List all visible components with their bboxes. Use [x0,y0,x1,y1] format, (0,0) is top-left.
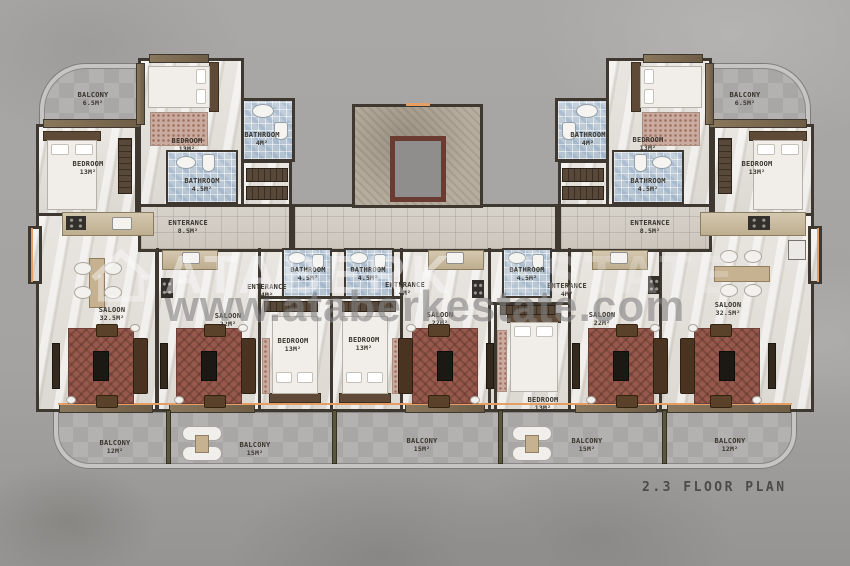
wardrobe [562,186,604,200]
wall-segment [568,248,571,412]
room-label-balcony-29: BALCONY15M² [572,437,603,453]
balcony-table-set [512,426,554,462]
window-accent [31,228,33,282]
wardrobe [246,168,288,182]
wood-wall-segment [644,55,702,62]
room-label-bathroom-4: BATHROOM4.5M² [184,177,219,193]
sofa-set [160,324,256,408]
sofa-set [398,324,494,408]
bathroom-sink [288,252,306,264]
room-label-enterance-5: ENTERANCE8.5M² [168,219,208,235]
wardrobe [500,305,556,315]
balcony-table-set [182,426,224,462]
stove [472,280,484,298]
room-label-bedroom-23: BEDROOM13M² [742,160,773,176]
kitchen-sink [182,252,200,264]
room-label-bathroom-8: BATHROOM4.5M² [290,266,325,282]
room-label-bedroom-10: BEDROOM13M² [278,337,309,353]
room-label-enterance-12: ENTERANCE4M² [385,281,425,297]
room-label-saloon-14: SALOON22M² [427,311,454,327]
window-accent [817,228,819,282]
stove [161,278,173,298]
wood-wall-segment [710,120,806,127]
room-label-balcony-28: BALCONY15M² [407,437,438,453]
dining-set [706,250,778,298]
room-label-saloon-25: SALOON32.5M² [715,301,742,317]
corridor-floor [292,204,558,252]
wardrobe [718,138,732,194]
floor-plan-image: BALCONY6.5M²BEDROOM13M²BEDROOM13M²BATHRO… [0,0,850,566]
floor-plan-caption: 2.3 FLOOR PLAN [642,480,787,496]
room-label-balcony-24: BALCONY6.5M² [730,91,761,107]
room-label-bedroom-13: BEDROOM13M² [349,336,380,352]
wardrobe [246,186,288,200]
wall-segment [258,248,261,412]
unit1-enterance-floor [138,204,292,252]
kitchen-sink [112,217,132,230]
room-label-bedroom-17: BEDROOM13M² [528,396,559,412]
wood-wall-segment [706,64,713,124]
bathroom-sink [576,104,598,118]
wall-segment [156,248,159,412]
room-label-enterance-9: ENTERANCE4M² [247,283,287,299]
sofa-set [680,324,776,408]
room-label-bedroom-1: BEDROOM13M² [73,160,104,176]
bathroom-sink [508,252,526,264]
balcony-divider [662,410,667,464]
wardrobe [342,301,396,312]
room-label-balcony-0: BALCONY6.5M² [78,91,109,107]
room-label-bathroom-19: BATHROOM4.5M² [630,177,665,193]
bathroom-sink [252,104,274,118]
bed [270,310,320,402]
room-label-bathroom-11: BATHROOM4.5M² [350,266,385,282]
balcony-divider [332,410,337,464]
balcony-divider [166,410,171,464]
room-label-saloon-6: SALOON32.5M² [99,306,126,322]
stove [748,216,770,230]
window-accent [406,103,430,106]
wardrobe [264,301,318,312]
wood-wall-segment [137,64,144,124]
room-label-balcony-30: BALCONY12M² [715,437,746,453]
bathroom-sink [652,156,672,169]
fridge [788,240,806,260]
elevator-shaft [390,136,446,202]
room-label-bathroom-21: BATHROOM4M² [570,131,605,147]
room-label-bathroom-15: BATHROOM4.5M² [509,266,544,282]
room-label-saloon-7: SALOON22M² [215,312,242,328]
bed [632,63,704,111]
room-label-bathroom-3: BATHROOM4M² [244,131,279,147]
toilet [634,154,647,172]
bed [146,63,218,111]
wall-segment [330,300,333,412]
kitchen-sink [446,252,464,264]
stove [648,276,660,294]
toilet [202,154,215,172]
bathroom-sink [350,252,368,264]
room-label-balcony-26: BALCONY12M² [100,439,131,455]
wood-wall-segment [44,120,140,127]
wardrobe [562,168,604,182]
wardrobe [118,138,132,194]
wood-wall-segment [150,55,208,62]
room-label-enterance-20: ENTERANCE8.5M² [630,219,670,235]
bathroom-sink [176,156,196,169]
room-label-balcony-27: BALCONY15M² [240,441,271,457]
balcony-divider [498,410,503,464]
right-window-bay [808,226,822,284]
room-label-enterance-16: ENTERANCE4M² [547,282,587,298]
sofa-set [52,324,148,408]
stove [66,216,86,230]
sofa-set [572,324,668,408]
room-label-bedroom-22: BEDROOM13M² [633,136,664,152]
kitchen-sink [610,252,628,264]
bed [508,314,560,394]
room-label-saloon-18: SALOON22M² [589,311,616,327]
bed [340,310,390,402]
bedroom-carpet [262,338,270,394]
bedroom-carpet [497,330,507,392]
room-label-bedroom-2: BEDROOM13M² [172,137,203,153]
